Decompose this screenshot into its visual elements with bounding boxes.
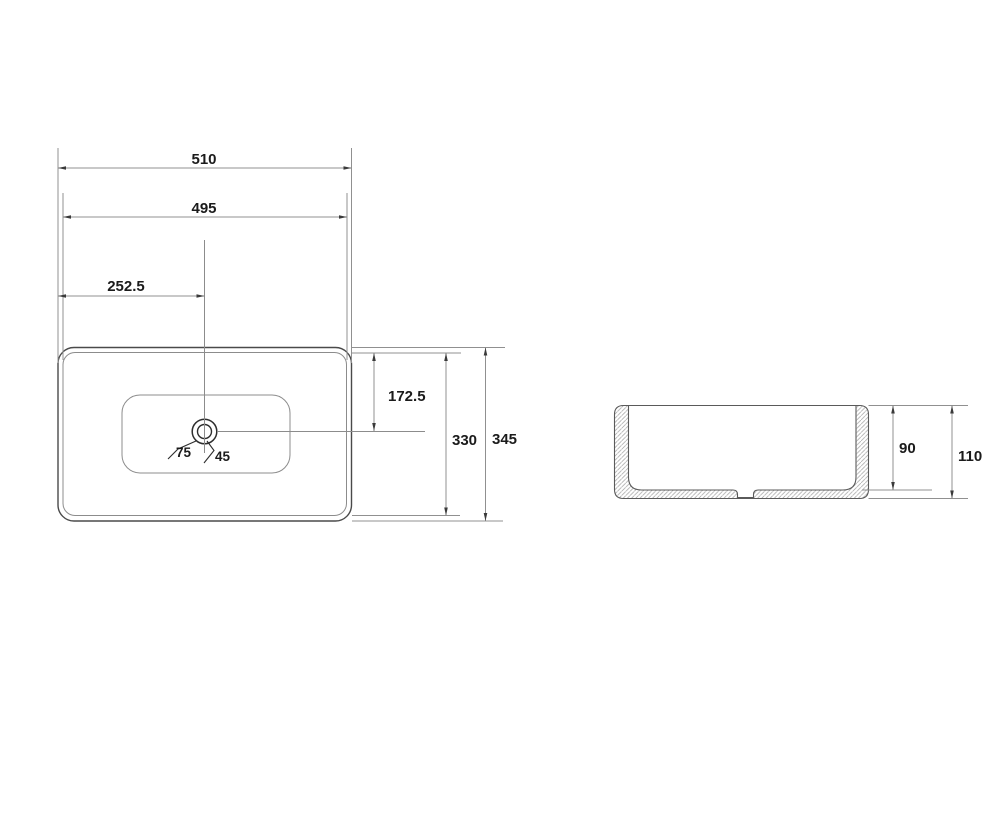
dim-label-90: 90: [899, 440, 916, 457]
arrow-252-5-left: [58, 294, 66, 298]
arrow-172-5-bottom: [372, 423, 376, 431]
arrow-345-top: [484, 348, 488, 356]
dim-label-495: 495: [191, 200, 216, 217]
drain-inner-dia-label: 45: [215, 449, 231, 464]
arrow-172-5-top: [372, 353, 376, 361]
arrow-495-left: [63, 215, 71, 219]
dim-label-510: 510: [191, 151, 216, 168]
dim-label-172-5: 172.5: [388, 388, 426, 405]
arrow-110-top: [950, 406, 954, 414]
section-body-hatched: [615, 406, 869, 499]
dim-label-330: 330: [452, 432, 477, 449]
arrow-510-right: [344, 166, 352, 170]
arrow-330-bottom: [444, 508, 448, 516]
technical-drawing-svg: 75 45 510 495 252.5 172.5: [0, 0, 1000, 833]
dim-label-252-5: 252.5: [107, 278, 145, 295]
drawing-canvas: 75 45 510 495 252.5 172.5: [0, 0, 1000, 833]
arrow-252-5-right: [197, 294, 205, 298]
dim-label-110: 110: [958, 448, 982, 465]
drain-outer-dia-label: 75: [176, 445, 192, 460]
arrow-110-bottom: [950, 491, 954, 499]
section-dimensions: 90 110: [862, 406, 982, 499]
arrow-510-left: [58, 166, 66, 170]
section-view: [615, 406, 869, 499]
arrow-90-top: [891, 406, 895, 414]
arrow-495-right: [339, 215, 347, 219]
arrow-345-bottom: [484, 513, 488, 521]
dim-label-345: 345: [492, 431, 517, 448]
arrow-330-top: [444, 353, 448, 361]
arrow-90-bottom: [891, 482, 895, 490]
